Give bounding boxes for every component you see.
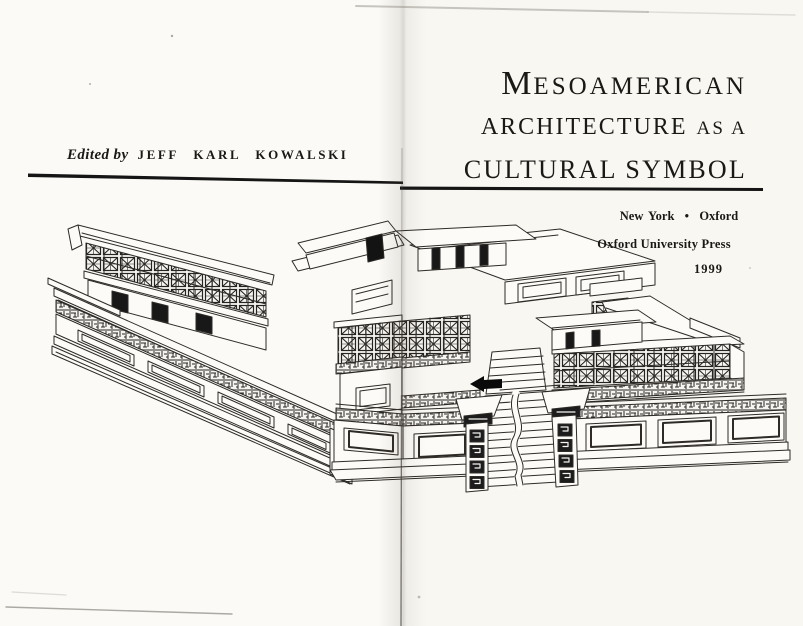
terraced-platform — [48, 278, 352, 484]
title-initial: M — [501, 65, 533, 102]
page-fold-line-lower — [401, 395, 402, 626]
scanned-book-spread: Edited byJEFF KARL KOWALSKI MESOAMERICAN… — [0, 0, 803, 626]
east-building — [552, 296, 744, 404]
right-page-tint — [403, 0, 803, 626]
right-balustrade — [542, 388, 590, 487]
north-building — [410, 229, 655, 334]
scan-artifacts — [6, 6, 795, 614]
title-line-3: CULTURAL SYMBOL — [464, 149, 747, 190]
imprint-publisher: Oxford University Press — [592, 237, 736, 252]
platform-corner-post — [330, 428, 352, 484]
architecture-illustration — [0, 0, 803, 626]
central-staircase — [456, 385, 590, 492]
title-line-1-rest: ESOAMERICAN — [533, 73, 747, 100]
central-temple — [292, 221, 536, 314]
title-line-2-small: AS A — [696, 118, 747, 139]
left-balustrade — [456, 395, 502, 492]
gutter-shadow — [378, 0, 426, 626]
page-fold-line — [402, 148, 403, 395]
editor-name: JEFF KARL KOWALSKI — [138, 147, 349, 162]
title-line-2-main: ARCHITECTURE — [481, 114, 688, 140]
imprint-cities: New York • Oxford — [604, 209, 754, 224]
title-line-2: ARCHITECTUREAS A — [464, 107, 747, 149]
south-building — [330, 394, 790, 482]
title-line-1: MESOAMERICAN — [464, 63, 747, 107]
edited-by-label: Edited by — [67, 147, 129, 163]
book-title: MESOAMERICAN ARCHITECTUREAS A CULTURAL S… — [464, 63, 747, 190]
inner-court-facade — [334, 310, 656, 437]
west-building — [68, 225, 274, 350]
divider-rule-left — [28, 174, 403, 185]
arrow-annotation — [470, 376, 502, 392]
edited-by-line: Edited byJEFF KARL KOWALSKI — [67, 146, 348, 164]
divider-rule-right — [400, 187, 763, 192]
imprint-year: 1999 — [694, 262, 723, 277]
